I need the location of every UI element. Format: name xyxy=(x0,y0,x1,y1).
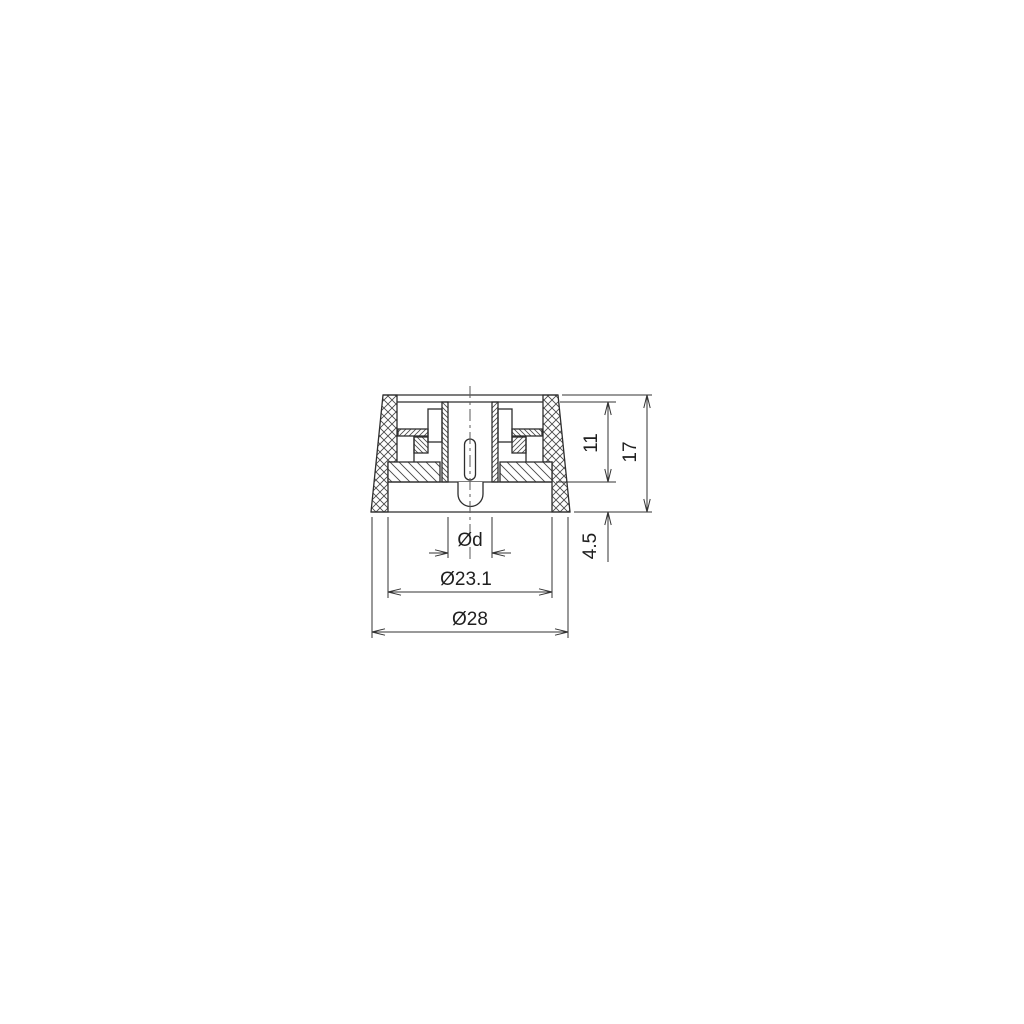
knob-technical-drawing: 11 17 4.5 xyxy=(0,0,1024,1024)
rib-block-left xyxy=(428,409,442,442)
knob-skirt-left-wall xyxy=(371,395,397,512)
inner-diameter-dimension-label: Ø23.1 xyxy=(440,569,492,590)
hub-block-right xyxy=(500,462,552,482)
outer-diameter-dimension-label: Ø28 xyxy=(452,609,488,630)
flange-bar-left xyxy=(398,429,428,436)
flange-bar-right xyxy=(512,429,542,436)
dimension-total-height: 17 xyxy=(620,395,650,512)
shaft-diameter-dimension-label: Ød xyxy=(457,530,482,551)
dimension-outer-diameter: Ø28 xyxy=(372,609,568,635)
bushing-wall-left xyxy=(442,402,448,482)
rib-square-right xyxy=(512,437,526,453)
rib-square-left xyxy=(414,437,428,453)
skirt-height-dimension-label: 4.5 xyxy=(580,533,601,559)
total-height-dimension-label: 17 xyxy=(620,441,641,462)
hub-block-left xyxy=(388,462,440,482)
knob-skirt-right-wall xyxy=(543,395,570,512)
dimension-inner-diameter: Ø23.1 xyxy=(388,569,552,595)
inner-depth-dimension-label: 11 xyxy=(581,433,602,453)
rib-block-right xyxy=(498,409,512,442)
bushing-wall-right xyxy=(492,402,498,482)
drawing-canvas: 11 17 4.5 xyxy=(0,0,1024,1024)
dimension-skirt-height: 4.5 xyxy=(580,512,611,562)
dimension-inner-depth: 11 xyxy=(581,402,611,482)
